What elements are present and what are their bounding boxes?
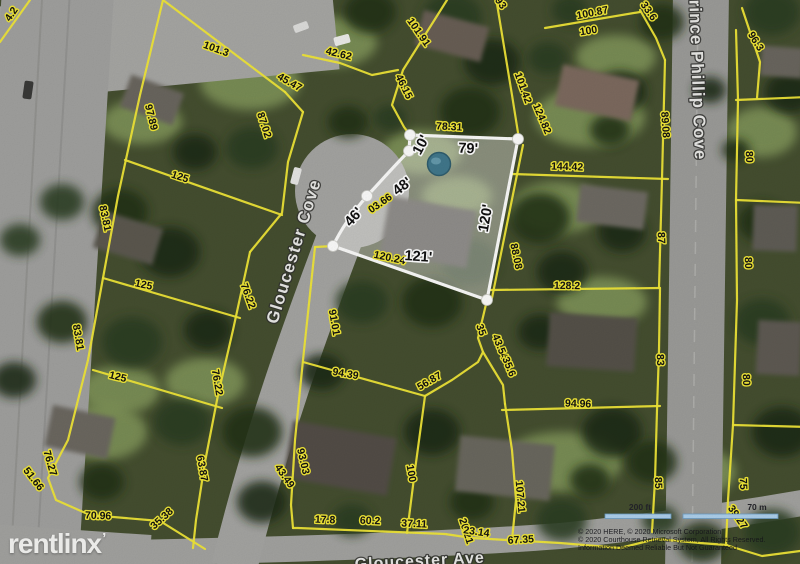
rentlinx-watermark: rentlinx’ [8,528,105,560]
rentlinx-tick: ’ [102,530,105,547]
aerial-map[interactable]: 4.2101.342.6245.4746.15101.9197.8987.021… [0,0,800,564]
photo-grain [0,0,800,564]
map-canvas[interactable]: 4.2101.342.6245.4746.15101.9197.8987.021… [0,0,800,564]
rentlinx-text: rentlinx [8,528,101,559]
